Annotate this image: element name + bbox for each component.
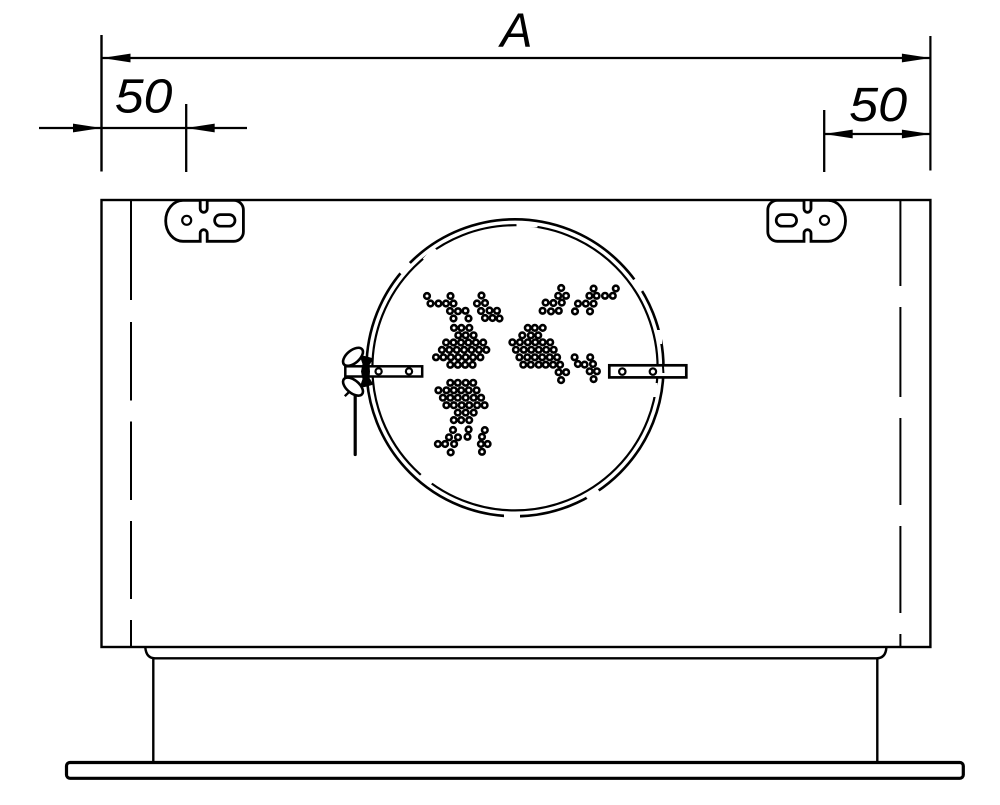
svg-text:50: 50 [849,79,907,132]
svg-text:A: A [497,5,532,58]
svg-text:50: 50 [115,71,173,124]
